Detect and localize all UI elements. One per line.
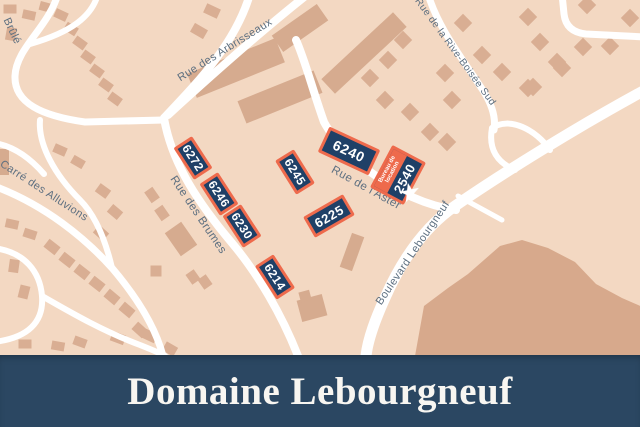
page-title: Domaine Lebourgneuf [127, 369, 512, 414]
poster: Brûlé Carré des Alluvions Rue des Arbris… [0, 0, 640, 427]
map-area: Brûlé Carré des Alluvions Rue des Arbris… [0, 0, 640, 355]
map-canvas [0, 0, 640, 355]
building [0, 149, 9, 175]
title-banner: Domaine Lebourgneuf [0, 355, 640, 427]
rental-office-star-icon: ★ [397, 179, 424, 208]
